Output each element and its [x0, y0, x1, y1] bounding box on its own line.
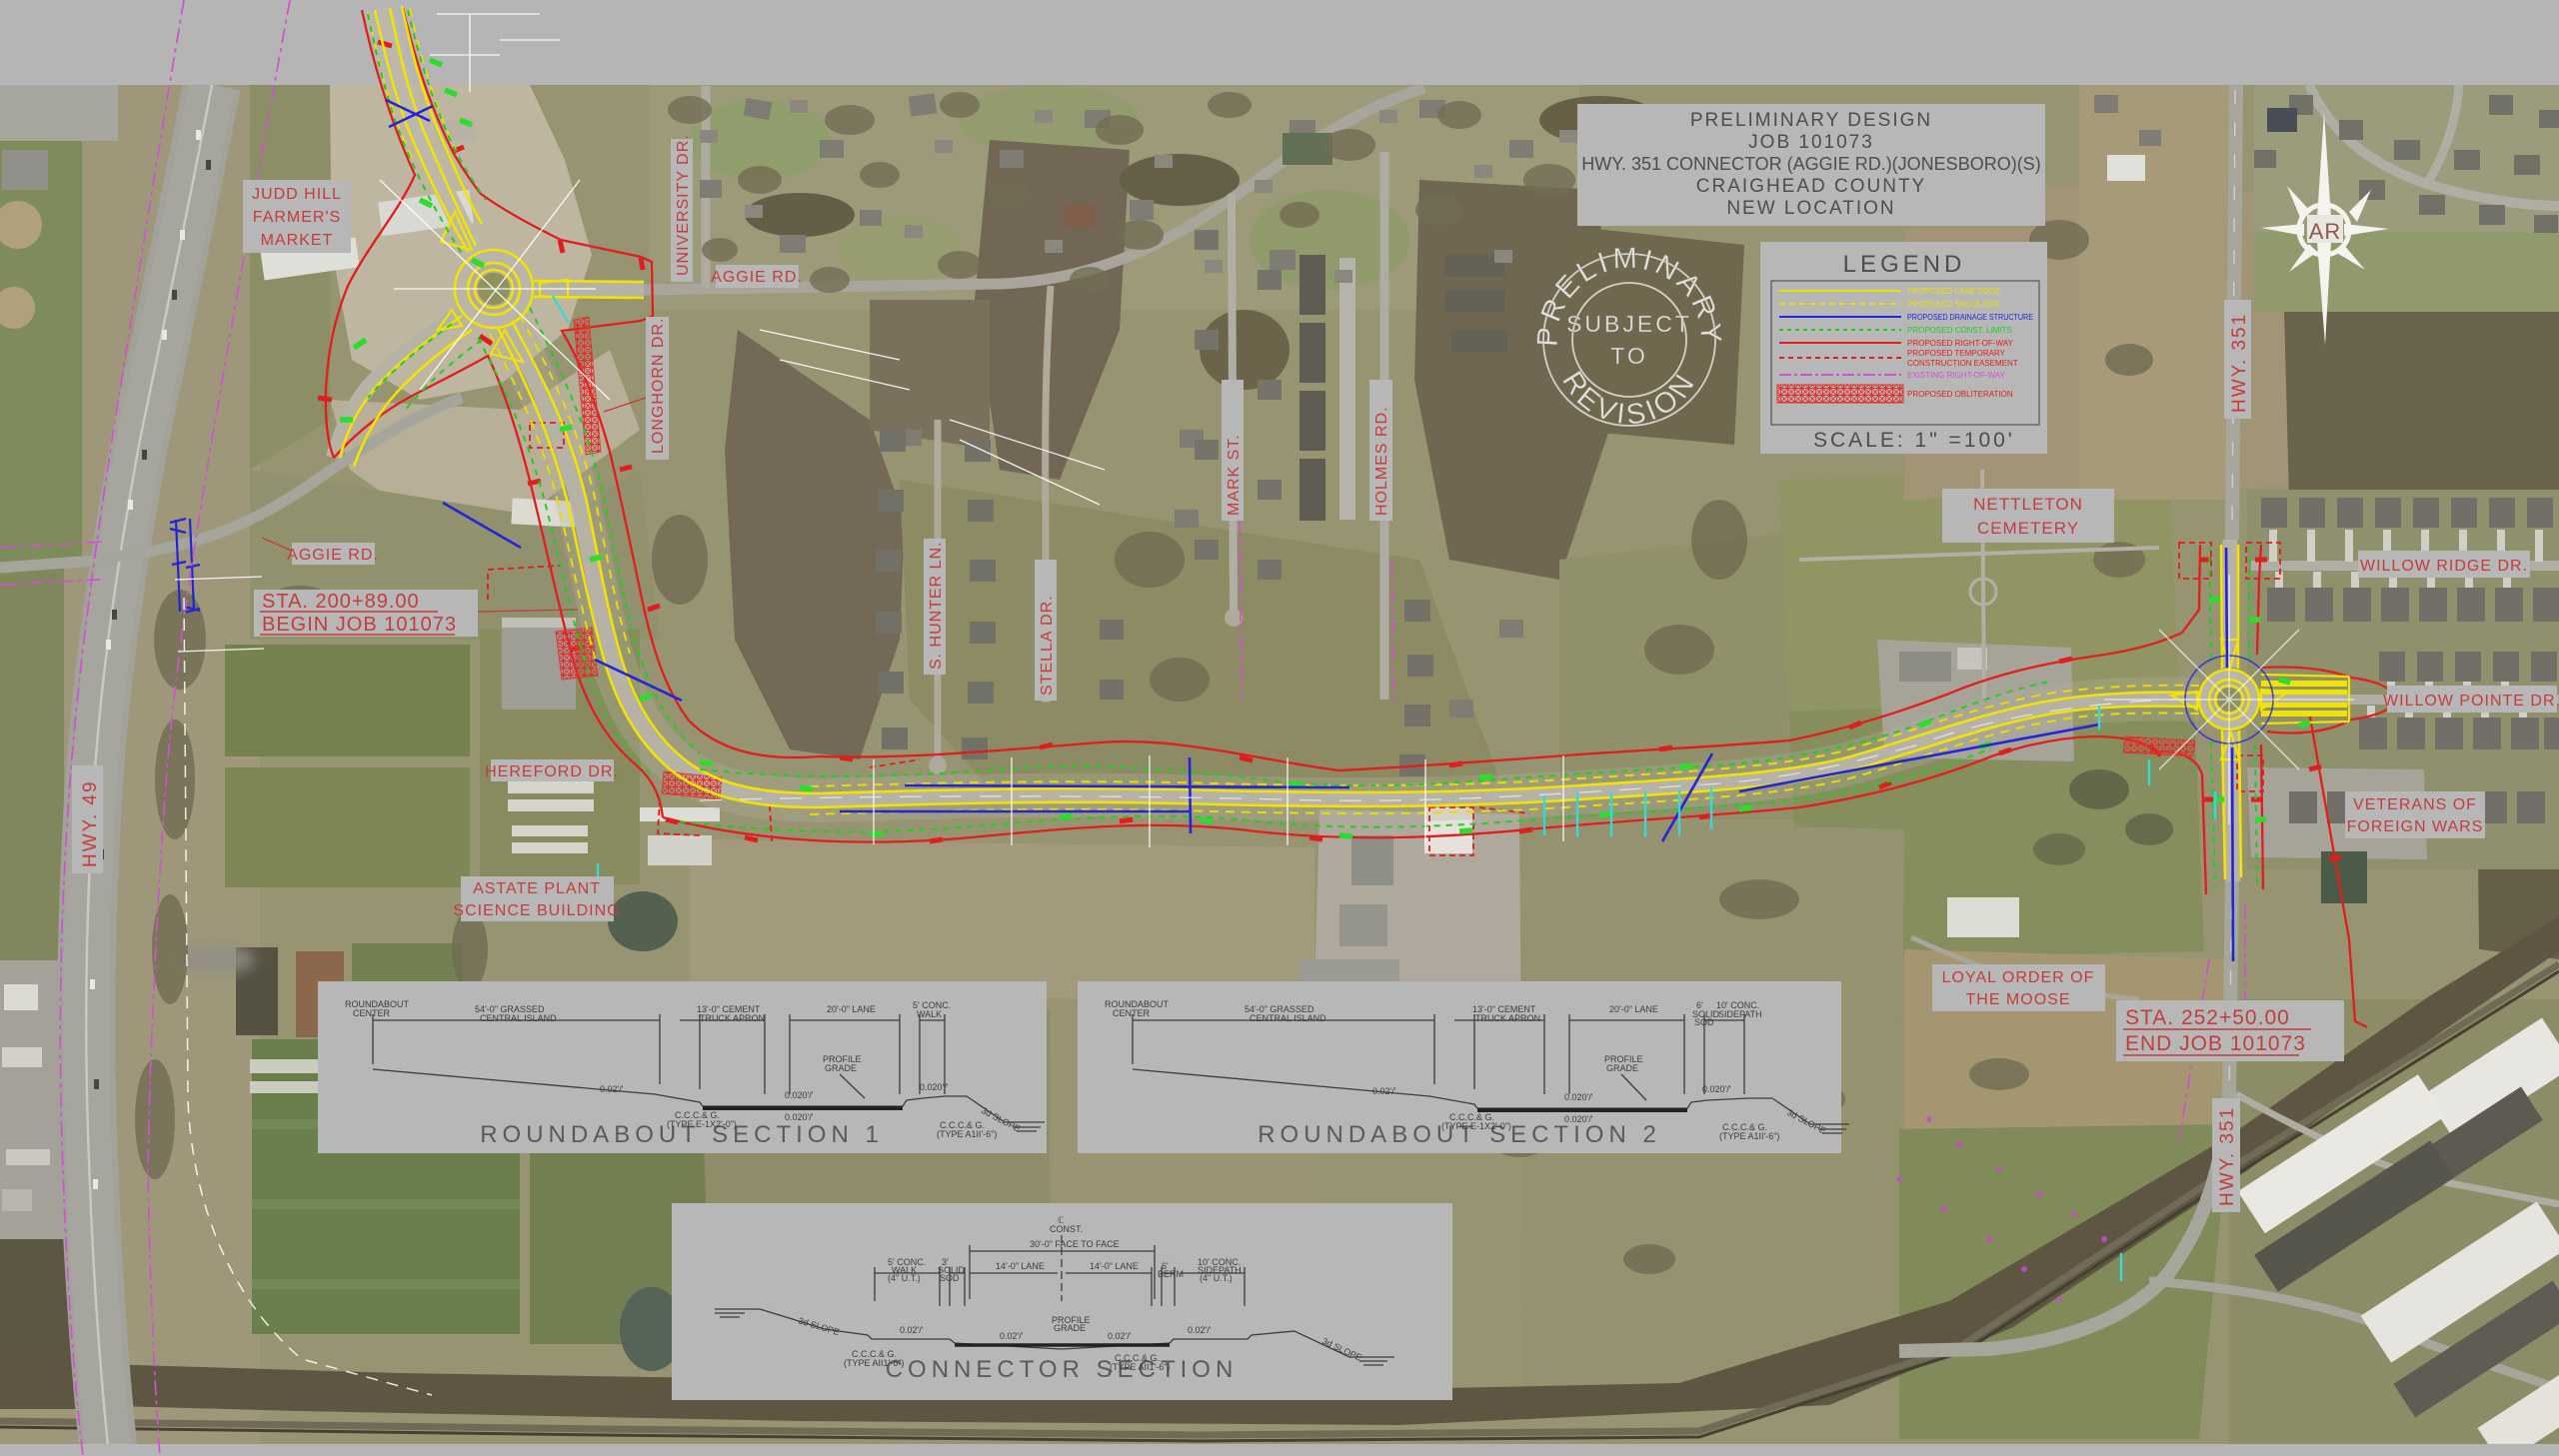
svg-text:MARKET: MARKET — [261, 232, 334, 249]
svg-text:GRADE: GRADE — [1606, 1063, 1638, 1073]
svg-text:LONGHORN DR.: LONGHORN DR. — [650, 318, 667, 454]
svg-text:CRAIGHEAD COUNTY: CRAIGHEAD COUNTY — [1696, 176, 1926, 197]
svg-text:WILLOW POINTE DR.: WILLOW POINTE DR. — [2383, 693, 2559, 710]
svg-text:CENTRAL ISLAND: CENTRAL ISLAND — [1250, 1013, 1326, 1023]
svg-text:0.02'/': 0.02'/' — [1108, 1331, 1132, 1341]
svg-text:SOD: SOD — [1694, 1017, 1714, 1027]
svg-text:FOREIGN WARS: FOREIGN WARS — [2347, 818, 2484, 835]
svg-text:30'-0" FACE TO FACE: 30'-0" FACE TO FACE — [1030, 1239, 1120, 1249]
svg-text:CENTER: CENTER — [353, 1008, 391, 1018]
svg-text:GRADE: GRADE — [825, 1063, 857, 1073]
svg-text:TO: TO — [1610, 343, 1648, 369]
svg-text:BEGIN JOB 101073: BEGIN JOB 101073 — [262, 614, 457, 636]
svg-text:PROPOSED SHOULDER: PROPOSED SHOULDER — [1907, 300, 1999, 309]
svg-text:0.02'/': 0.02'/' — [1372, 1086, 1396, 1096]
svg-text:AGGIE RD.: AGGIE RD. — [711, 269, 803, 286]
svg-text:VETERANS OF: VETERANS OF — [2353, 796, 2477, 813]
svg-text:(TYPE E-1X2'-0"): (TYPE E-1X2'-0") — [1441, 1121, 1511, 1131]
svg-text:CENTER: CENTER — [1113, 1008, 1151, 1018]
svg-text:STA. 252+50.00: STA. 252+50.00 — [2125, 1006, 2290, 1029]
svg-text:CONSTRUCTION EASEMENT: CONSTRUCTION EASEMENT — [1907, 359, 2018, 368]
svg-text:WALK: WALK — [917, 1009, 942, 1019]
svg-text:PROPOSED LANE EDGE: PROPOSED LANE EDGE — [1907, 287, 2000, 296]
svg-text:NETTLETON: NETTLETON — [1973, 495, 2083, 514]
svg-text:20'-0" LANE: 20'-0" LANE — [827, 1004, 876, 1014]
svg-text:UNIVERSITY DR.: UNIVERSITY DR. — [675, 134, 692, 276]
svg-text:0.020'/': 0.020'/' — [1564, 1092, 1593, 1102]
svg-text:WILLOW RIDGE DR.: WILLOW RIDGE DR. — [2360, 558, 2528, 575]
svg-text:JUDD HILL: JUDD HILL — [252, 186, 342, 203]
svg-text:SUBJECT: SUBJECT — [1566, 311, 1692, 337]
svg-text:PRELIMINARY DESIGN: PRELIMINARY DESIGN — [1690, 110, 1932, 131]
svg-text:0.020'/': 0.020'/' — [785, 1112, 814, 1122]
svg-text:CENTRAL ISLAND: CENTRAL ISLAND — [480, 1013, 557, 1023]
svg-text:CEMETERY: CEMETERY — [1977, 519, 2079, 538]
svg-text:HWY. 49: HWY. 49 — [80, 779, 101, 867]
svg-text:MARK ST.: MARK ST. — [1226, 434, 1243, 516]
svg-text:SCIENCE BUILDING: SCIENCE BUILDING — [453, 902, 620, 919]
svg-text:0.02'/': 0.02'/' — [600, 1084, 624, 1094]
svg-text:0.020'/': 0.020'/' — [920, 1082, 949, 1092]
svg-text:STA. 200+89.00: STA. 200+89.00 — [262, 591, 420, 613]
svg-text:HWY. 351 CONNECTOR (AGGIE RD.): HWY. 351 CONNECTOR (AGGIE RD.)(JONESBORO… — [1581, 154, 2040, 174]
svg-text:PROPOSED RIGHT-OF-WAY: PROPOSED RIGHT-OF-WAY — [1907, 339, 2013, 348]
svg-text:LOYAL ORDER OF: LOYAL ORDER OF — [1942, 969, 2095, 986]
svg-text:AGGIE RD.: AGGIE RD. — [287, 547, 379, 564]
svg-text:END JOB 101073: END JOB 101073 — [2125, 1032, 2306, 1055]
svg-text:LEGEND: LEGEND — [1843, 251, 1966, 278]
svg-text:NEW LOCATION: NEW LOCATION — [1726, 198, 1895, 219]
svg-text:PROPOSED OBLITERATION: PROPOSED OBLITERATION — [1907, 390, 2013, 399]
svg-text:(TYPE AII1'-6"): (TYPE AII1'-6") — [844, 1358, 904, 1368]
svg-text:14'-0" LANE: 14'-0" LANE — [996, 1261, 1045, 1271]
svg-text:0.020'/': 0.020'/' — [1564, 1114, 1593, 1124]
svg-text:TRUCK APRON: TRUCK APRON — [1475, 1013, 1540, 1023]
svg-text:STELLA DR.: STELLA DR. — [1039, 595, 1056, 696]
svg-text:TRUCK APRON: TRUCK APRON — [700, 1013, 765, 1023]
svg-text:0.02'/': 0.02'/' — [900, 1325, 924, 1335]
svg-text:0.020'/': 0.020'/' — [1702, 1084, 1731, 1094]
svg-text:(4" U.T.): (4" U.T.) — [888, 1273, 921, 1283]
svg-text:PROPOSED DRAINAGE STRUCTURE: PROPOSED DRAINAGE STRUCTURE — [1907, 313, 2033, 322]
svg-text:14'-0" LANE: 14'-0" LANE — [1090, 1261, 1139, 1271]
svg-text:BERM: BERM — [1158, 1269, 1184, 1279]
svg-text:JOB 101073: JOB 101073 — [1748, 132, 1874, 153]
svg-text:0.02'/': 0.02'/' — [1000, 1331, 1024, 1341]
svg-text:HWY. 351: HWY. 351 — [2229, 313, 2250, 413]
svg-text:HWY. 351: HWY. 351 — [2217, 1106, 2238, 1206]
svg-text:(TYPE A1II'-6"): (TYPE A1II'-6") — [1719, 1131, 1779, 1141]
svg-text:HOLMES RD.: HOLMES RD. — [1373, 406, 1390, 516]
svg-text:HEREFORD DR.: HEREFORD DR. — [485, 763, 619, 780]
svg-text:EXISTING RIGHT-OF-WAY: EXISTING RIGHT-OF-WAY — [1907, 371, 2005, 380]
svg-text:0.02'/': 0.02'/' — [1188, 1325, 1212, 1335]
svg-text:SIDEPATH: SIDEPATH — [1718, 1009, 1762, 1019]
svg-text:(4" U.T.): (4" U.T.) — [1200, 1273, 1233, 1283]
svg-text:(TYPE E-1X2'-0"): (TYPE E-1X2'-0") — [667, 1119, 737, 1129]
svg-text:PROPOSED CONST. LIMITS: PROPOSED CONST. LIMITS — [1907, 326, 2012, 335]
svg-text:SOD: SOD — [940, 1273, 960, 1283]
svg-text:(TYPE AII1'-6"): (TYPE AII1'-6") — [1110, 1362, 1170, 1372]
svg-text:FARMER'S: FARMER'S — [253, 209, 341, 226]
svg-text:AR: AR — [2309, 219, 2342, 244]
svg-text:THE MOOSE: THE MOOSE — [1965, 991, 2070, 1008]
svg-text:PROPOSED TEMPORARY: PROPOSED TEMPORARY — [1907, 349, 2006, 358]
svg-text:20'-0" LANE: 20'-0" LANE — [1609, 1004, 1658, 1014]
svg-text:0.020'/': 0.020'/' — [785, 1090, 814, 1100]
svg-text:(TYPE A1II'-6"): (TYPE A1II'-6") — [937, 1129, 997, 1139]
svg-text:S. HUNTER LN.: S. HUNTER LN. — [928, 541, 945, 670]
svg-text:GRADE: GRADE — [1054, 1323, 1086, 1333]
svg-text:SCALE: 1" =100': SCALE: 1" =100' — [1813, 429, 2015, 452]
svg-text:CONST.: CONST. — [1050, 1224, 1083, 1234]
svg-text:CONNECTOR SECTION: CONNECTOR SECTION — [886, 1356, 1239, 1383]
svg-text:ASTATE PLANT: ASTATE PLANT — [473, 880, 601, 897]
